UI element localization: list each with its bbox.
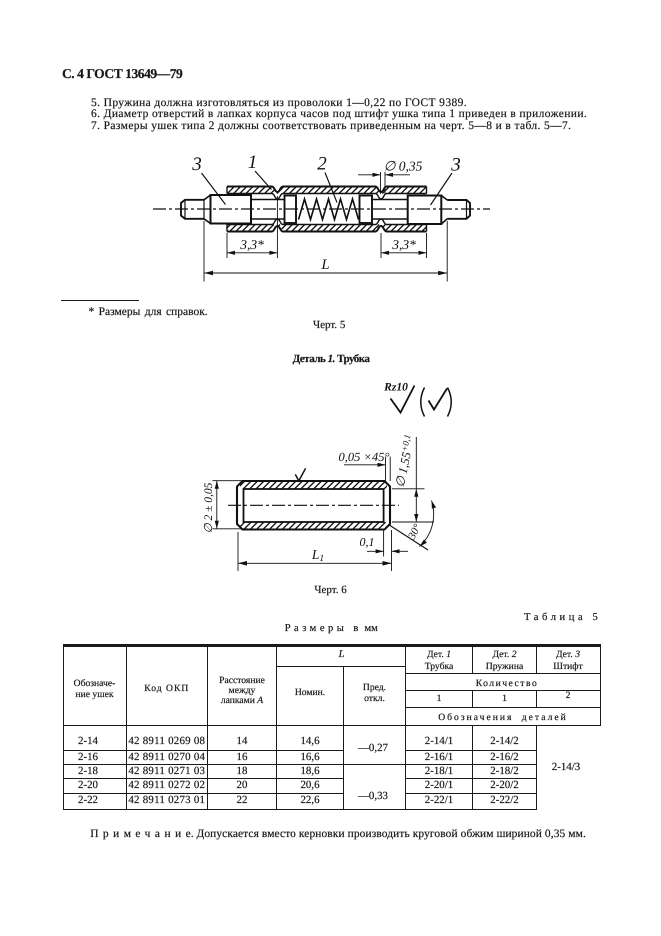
svg-text:Rz10: Rz10 bbox=[383, 382, 408, 394]
svg-text:L1: L1 bbox=[311, 547, 324, 564]
svg-text:30°: 30° bbox=[406, 522, 425, 543]
svg-text:3: 3 bbox=[191, 154, 202, 175]
svg-text:∅ 1,55+0,1: ∅ 1,55+0,1 bbox=[392, 433, 418, 488]
svg-text:∅ 0,35: ∅ 0,35 bbox=[384, 159, 423, 174]
svg-text:1: 1 bbox=[248, 152, 258, 173]
svg-text:3,3*: 3,3* bbox=[239, 237, 264, 252]
svg-text:0,1: 0,1 bbox=[360, 535, 375, 549]
svg-text:∅ 2 ± 0,05: ∅ 2 ± 0,05 bbox=[203, 482, 215, 533]
svg-text:2: 2 bbox=[317, 154, 327, 175]
svg-text:L: L bbox=[320, 257, 329, 273]
svg-text:0,05 ×45°: 0,05 ×45° bbox=[339, 450, 390, 464]
svg-text:3: 3 bbox=[450, 155, 461, 176]
svg-text:3,3*: 3,3* bbox=[391, 237, 416, 252]
